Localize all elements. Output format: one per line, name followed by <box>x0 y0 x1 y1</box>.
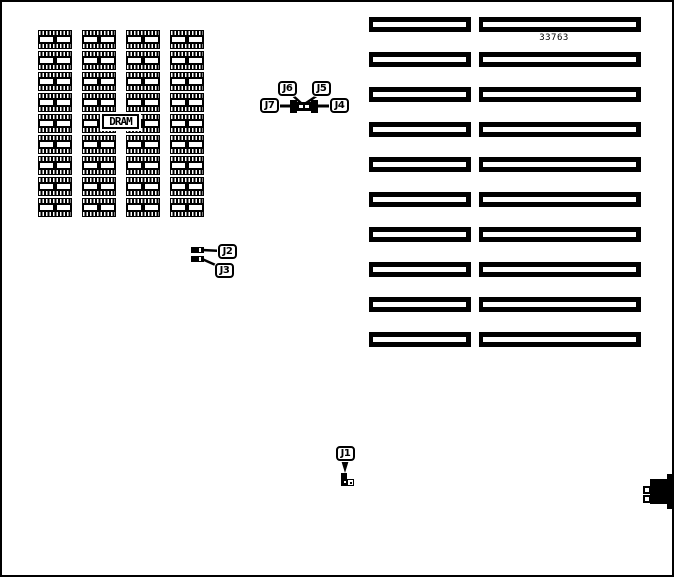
chip-pins-bottom <box>39 86 71 90</box>
chip-pins-top <box>83 52 115 56</box>
slot-groove <box>483 127 636 132</box>
chip-pins-top <box>127 52 159 56</box>
chip-body-notch-right <box>57 163 70 168</box>
chip-pins-bottom <box>127 107 159 111</box>
chip-pins-bottom <box>127 44 159 48</box>
chip-pins-bottom <box>171 44 203 48</box>
circuit-board-diagram: DRAM J6 J5 J7 J4 J2 J3 J1 <box>0 0 674 577</box>
expansion-slot-long-segment <box>479 262 641 277</box>
chip-pins-bottom <box>127 170 159 174</box>
slot-groove <box>483 267 636 272</box>
chip-pins-top <box>127 136 159 140</box>
chip-pins-top <box>39 136 71 140</box>
jumper-label-j4: J4 <box>330 98 349 113</box>
dram-chip-icon <box>38 114 72 133</box>
chip-body-notch-right <box>101 184 114 189</box>
dram-chip-icon <box>126 198 160 217</box>
chip-pins-bottom <box>127 212 159 216</box>
dram-label: DRAM <box>102 114 139 129</box>
chip-body-notch-left <box>84 100 97 105</box>
chip-pins-bottom <box>171 65 203 69</box>
chip-pins-bottom <box>171 170 203 174</box>
expansion-slot-row <box>369 87 641 102</box>
expansion-slot-long-segment <box>479 17 641 32</box>
chip-body-notch-left <box>84 79 97 84</box>
dram-chip-icon <box>82 135 116 154</box>
expansion-slot-short-segment <box>369 17 471 32</box>
chip-body-notch-right <box>57 142 70 147</box>
expansion-slot-long-segment <box>479 52 641 67</box>
keyboard-connector-shell <box>650 479 668 504</box>
expansion-slot-short-segment <box>369 227 471 242</box>
expansion-slot-short-segment <box>369 262 471 277</box>
chip-body-notch-left <box>172 37 185 42</box>
slot-groove <box>373 302 466 307</box>
slot-groove <box>373 337 466 342</box>
dram-chip-icon <box>82 51 116 70</box>
jumper-label-j3: J3 <box>215 263 234 278</box>
chip-pins-top <box>39 31 71 35</box>
chip-pins-bottom <box>39 191 71 195</box>
jumper-label-j1: J1 <box>336 446 355 461</box>
chip-pins-top <box>39 178 71 182</box>
chip-body-notch-left <box>128 37 141 42</box>
chip-body-notch-left <box>172 100 185 105</box>
jumper-j1-body <box>341 479 354 486</box>
chip-pins-top <box>127 31 159 35</box>
expansion-slot-short-segment <box>369 87 471 102</box>
chip-pins-bottom <box>171 149 203 153</box>
chip-body-notch-left <box>84 184 97 189</box>
expansion-slot-row <box>369 17 641 32</box>
jumper-pad-j3 <box>191 256 204 262</box>
jumper-block-left-pad <box>290 100 297 113</box>
chip-body-notch-left <box>40 79 53 84</box>
chip-body-notch-right <box>101 205 114 210</box>
expansion-slot-short-segment <box>369 297 471 312</box>
chip-body-notch-left <box>172 58 185 63</box>
dram-chip-icon <box>38 30 72 49</box>
slot-groove <box>483 302 636 307</box>
dram-chip-icon <box>170 156 204 175</box>
chip-body-notch-right <box>145 100 158 105</box>
chip-pins-top <box>127 199 159 203</box>
expansion-slot-long-segment <box>479 87 641 102</box>
keyboard-connector-pin <box>643 495 651 503</box>
slot-groove <box>373 57 466 62</box>
chip-pins-bottom <box>171 128 203 132</box>
dram-chip-icon <box>38 177 72 196</box>
expansion-slot-short-segment <box>369 157 471 172</box>
chip-body-notch-left <box>172 142 185 147</box>
dram-chip-icon <box>170 135 204 154</box>
chip-pins-bottom <box>39 44 71 48</box>
expansion-slot-short-segment <box>369 122 471 137</box>
chip-body-notch-right <box>189 79 202 84</box>
chip-pins-top <box>83 199 115 203</box>
slot-groove <box>373 22 466 27</box>
expansion-slot-row <box>369 262 641 277</box>
dram-chip-icon <box>82 72 116 91</box>
dram-chip-icon <box>82 93 116 112</box>
chip-body-notch-right <box>57 58 70 63</box>
slot-groove <box>373 232 466 237</box>
chip-body-notch-right <box>145 142 158 147</box>
chip-body-notch-left <box>128 100 141 105</box>
chip-body-notch-left <box>40 184 53 189</box>
chip-body-notch-left <box>84 121 97 126</box>
dram-chip-icon <box>170 177 204 196</box>
slot-groove <box>373 197 466 202</box>
slot-groove <box>373 162 466 167</box>
dram-chip-icon <box>126 30 160 49</box>
chip-body-notch-right <box>57 205 70 210</box>
chip-body-notch-right <box>145 205 158 210</box>
chip-body-notch-right <box>189 142 202 147</box>
chip-pins-top <box>83 178 115 182</box>
jumper-label-j2: J2 <box>218 244 237 259</box>
expansion-slot-row <box>369 122 641 137</box>
dram-chip-icon <box>126 177 160 196</box>
chip-pins-top <box>171 157 203 161</box>
chip-pins-bottom <box>39 128 71 132</box>
chip-body-notch-left <box>172 163 185 168</box>
chip-body-notch-left <box>128 58 141 63</box>
chip-body-notch-right <box>189 163 202 168</box>
chip-pins-top <box>39 115 71 119</box>
chip-body-notch-right <box>57 100 70 105</box>
expansion-slot-long-segment <box>479 122 641 137</box>
chip-pins-top <box>171 52 203 56</box>
chip-body-notch-left <box>40 121 53 126</box>
chip-pins-top <box>171 73 203 77</box>
chip-pins-bottom <box>39 65 71 69</box>
chip-body-notch-left <box>40 205 53 210</box>
jumper-gap <box>199 248 201 252</box>
chip-pins-bottom <box>127 191 159 195</box>
expansion-slot-row <box>369 227 641 242</box>
chip-pins-top <box>83 157 115 161</box>
chip-body-notch-left <box>172 205 185 210</box>
chip-pins-bottom <box>127 86 159 90</box>
chip-pins-bottom <box>171 107 203 111</box>
chip-pins-top <box>39 94 71 98</box>
chip-pins-top <box>83 73 115 77</box>
chip-pins-bottom <box>83 149 115 153</box>
chip-pins-bottom <box>127 149 159 153</box>
chip-pins-bottom <box>39 170 71 174</box>
slot-groove <box>483 232 636 237</box>
dram-chip-icon <box>82 177 116 196</box>
dram-chip-icon <box>126 135 160 154</box>
chip-pins-bottom <box>127 65 159 69</box>
chip-body-notch-right <box>101 37 114 42</box>
chip-body-notch-right <box>145 79 158 84</box>
chip-pins-bottom <box>83 107 115 111</box>
chip-body-notch-right <box>145 184 158 189</box>
chip-pins-bottom <box>171 212 203 216</box>
slot-groove <box>483 162 636 167</box>
dram-chip-icon <box>38 198 72 217</box>
chip-body-notch-right <box>101 79 114 84</box>
chip-pins-top <box>171 199 203 203</box>
chip-body-notch-left <box>172 79 185 84</box>
expansion-slot-long-segment <box>479 227 641 242</box>
chip-body-notch-right <box>189 205 202 210</box>
expansion-slot-column <box>369 17 641 347</box>
dram-chip-icon <box>170 93 204 112</box>
chip-body-notch-left <box>40 163 53 168</box>
expansion-slot-row <box>369 332 641 347</box>
chip-body-notch-left <box>84 142 97 147</box>
dram-chip-icon <box>82 30 116 49</box>
chip-body-notch-right <box>189 100 202 105</box>
chip-body-notch-right <box>101 58 114 63</box>
chip-body-notch-left <box>128 205 141 210</box>
chip-pins-top <box>83 94 115 98</box>
chip-pins-top <box>83 136 115 140</box>
jumper-gap <box>344 481 346 483</box>
chip-pins-bottom <box>83 191 115 195</box>
jumper-gap <box>305 105 309 108</box>
j1-leader-tail <box>341 460 349 473</box>
expansion-slot-long-segment <box>479 157 641 172</box>
dram-chip-icon <box>170 30 204 49</box>
chip-pins-top <box>39 199 71 203</box>
expansion-slot-long-segment <box>479 297 641 312</box>
slot-groove <box>483 22 636 27</box>
chip-body-notch-left <box>128 184 141 189</box>
expansion-slot-row <box>369 192 641 207</box>
slot-groove <box>373 267 466 272</box>
jumper-block-right-pad <box>311 100 318 113</box>
expansion-slot-short-segment <box>369 192 471 207</box>
chip-pins-bottom <box>39 212 71 216</box>
chip-body-notch-right <box>57 184 70 189</box>
keyboard-connector-body <box>667 474 674 509</box>
chip-body-notch-left <box>172 184 185 189</box>
dram-chip-icon <box>126 72 160 91</box>
chip-pins-bottom <box>83 65 115 69</box>
dram-chip-icon <box>126 93 160 112</box>
chip-body-notch-left <box>84 205 97 210</box>
chip-body-notch-right <box>57 37 70 42</box>
chip-pins-top <box>83 31 115 35</box>
chip-body-notch-right <box>145 58 158 63</box>
slot-groove <box>483 92 636 97</box>
chip-body-notch-right <box>145 37 158 42</box>
dram-chip-icon <box>170 51 204 70</box>
jumper-pin-dot <box>350 482 352 484</box>
chip-body-notch-right <box>101 142 114 147</box>
expansion-slot-long-segment <box>479 192 641 207</box>
chip-pins-top <box>39 157 71 161</box>
slot-groove <box>373 127 466 132</box>
chip-pins-bottom <box>171 191 203 195</box>
slot-groove <box>483 197 636 202</box>
dram-chip-icon <box>170 198 204 217</box>
expansion-slot-short-segment <box>369 332 471 347</box>
chip-body-notch-left <box>40 37 53 42</box>
chip-body-notch-left <box>40 58 53 63</box>
chip-pins-top <box>39 52 71 56</box>
chip-body-notch-left <box>40 100 53 105</box>
chip-pins-bottom <box>83 86 115 90</box>
slot-groove <box>373 92 466 97</box>
expansion-slot-row <box>369 297 641 312</box>
chip-body-notch-right <box>189 121 202 126</box>
expansion-slot-row <box>369 157 641 172</box>
chip-body-notch-left <box>84 163 97 168</box>
chip-pins-bottom <box>39 107 71 111</box>
slot-groove <box>483 337 636 342</box>
jumper-label-j7: J7 <box>260 98 279 113</box>
chip-pins-bottom <box>171 86 203 90</box>
dram-chip-icon <box>38 72 72 91</box>
dram-chip-icon <box>170 114 204 133</box>
dram-chip-icon <box>82 156 116 175</box>
dram-chip-icon <box>170 72 204 91</box>
expansion-slot-long-segment <box>479 332 641 347</box>
chip-pins-bottom <box>83 170 115 174</box>
chip-pins-top <box>39 73 71 77</box>
dram-chip-icon <box>38 135 72 154</box>
chip-pins-top <box>127 178 159 182</box>
chip-pins-top <box>171 94 203 98</box>
dram-chip-icon <box>126 156 160 175</box>
jumper-gap <box>199 257 201 261</box>
chip-body-notch-left <box>128 163 141 168</box>
chip-pins-top <box>171 178 203 182</box>
jumper-gap <box>299 105 303 108</box>
part-number: 33763 <box>529 34 579 44</box>
chip-body-notch-right <box>189 58 202 63</box>
chip-pins-top <box>127 73 159 77</box>
chip-body-notch-right <box>101 100 114 105</box>
chip-body-notch-right <box>145 121 158 126</box>
jumper-label-j6: J6 <box>278 81 297 96</box>
chip-pins-top <box>127 94 159 98</box>
chip-body-notch-left <box>84 58 97 63</box>
chip-body-notch-left <box>128 79 141 84</box>
jumper-label-j5: J5 <box>312 81 331 96</box>
chip-body-notch-right <box>189 37 202 42</box>
dram-chip-icon <box>38 93 72 112</box>
dram-chip-icon <box>38 156 72 175</box>
chip-body-notch-left <box>40 142 53 147</box>
keyboard-connector-pin <box>643 486 651 494</box>
slot-groove <box>483 57 636 62</box>
chip-pins-top <box>171 31 203 35</box>
dram-chip-icon <box>38 51 72 70</box>
chip-body-notch-right <box>145 163 158 168</box>
chip-body-notch-right <box>57 121 70 126</box>
chip-body-notch-right <box>189 184 202 189</box>
chip-body-notch-right <box>101 163 114 168</box>
chip-body-notch-right <box>57 79 70 84</box>
chip-body-notch-left <box>128 142 141 147</box>
expansion-slot-row <box>369 52 641 67</box>
chip-pins-bottom <box>83 44 115 48</box>
chip-pins-top <box>171 136 203 140</box>
dram-chip-icon <box>82 198 116 217</box>
jumper-block-body <box>297 102 311 111</box>
chip-pins-top <box>171 115 203 119</box>
dram-chip-icon <box>126 51 160 70</box>
chip-body-notch-left <box>84 37 97 42</box>
chip-pins-top <box>127 157 159 161</box>
chip-body-notch-left <box>172 121 185 126</box>
chip-pins-bottom <box>83 212 115 216</box>
chip-pins-bottom <box>39 149 71 153</box>
expansion-slot-short-segment <box>369 52 471 67</box>
jumper-pad-j2 <box>191 247 204 253</box>
